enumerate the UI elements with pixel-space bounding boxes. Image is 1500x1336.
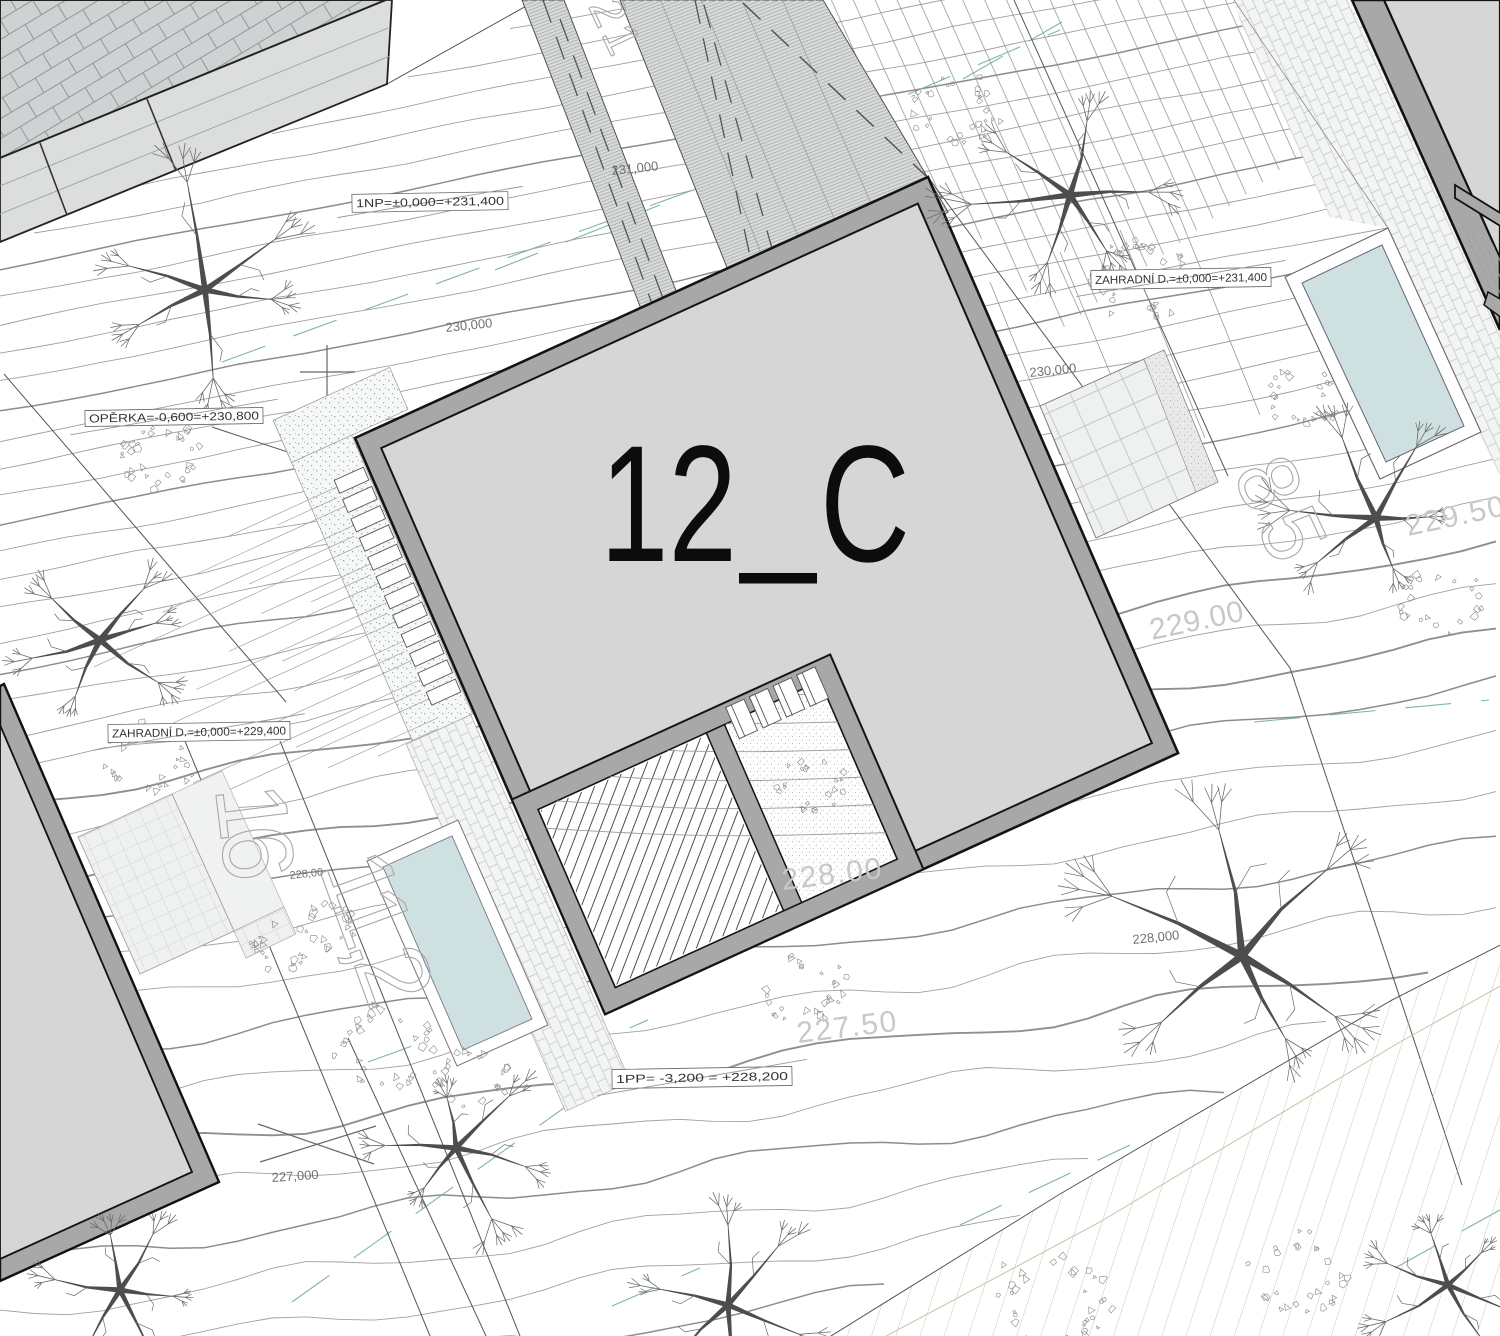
svg-text:12: 12 — [600, 412, 737, 597]
svg-text:C: C — [820, 412, 910, 597]
